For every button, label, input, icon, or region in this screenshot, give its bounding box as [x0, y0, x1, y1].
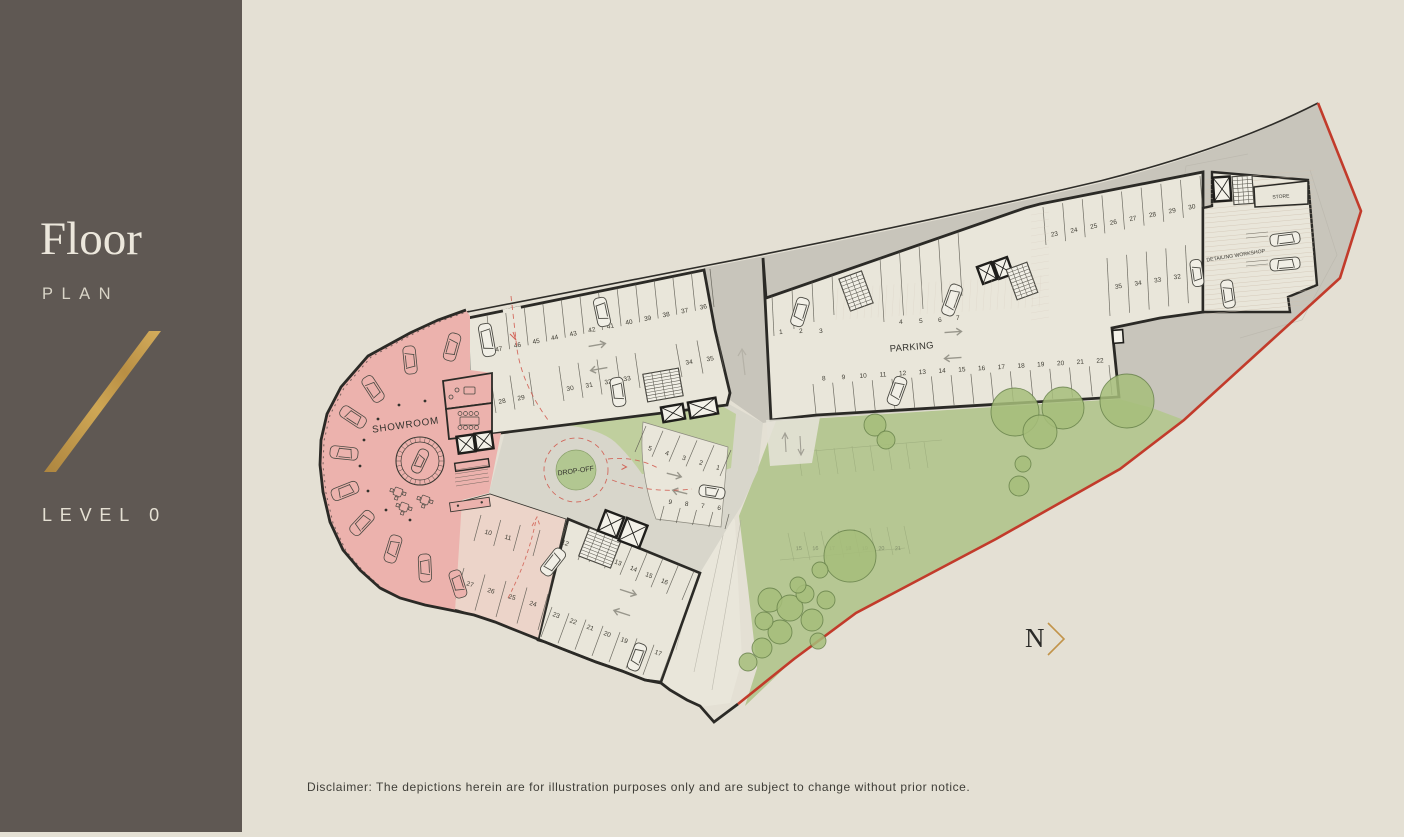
svg-text:16: 16 [978, 365, 986, 372]
svg-text:21: 21 [895, 546, 902, 552]
svg-text:11: 11 [879, 371, 887, 378]
svg-text:20: 20 [878, 546, 885, 552]
svg-text:15: 15 [796, 546, 803, 552]
svg-text:17: 17 [998, 364, 1006, 371]
svg-text:19: 19 [1037, 361, 1045, 368]
svg-text:10: 10 [859, 373, 867, 380]
svg-text:14: 14 [938, 368, 946, 375]
svg-text:13: 13 [919, 369, 927, 376]
svg-text:22: 22 [1096, 357, 1104, 364]
svg-text:16: 16 [812, 546, 819, 552]
svg-text:18: 18 [1017, 362, 1025, 369]
svg-text:N: N [1025, 623, 1045, 653]
svg-text:20: 20 [1057, 360, 1065, 367]
svg-text:15: 15 [958, 366, 966, 373]
svg-text:21: 21 [1076, 359, 1084, 366]
svg-text:STORE: STORE [1272, 193, 1290, 200]
